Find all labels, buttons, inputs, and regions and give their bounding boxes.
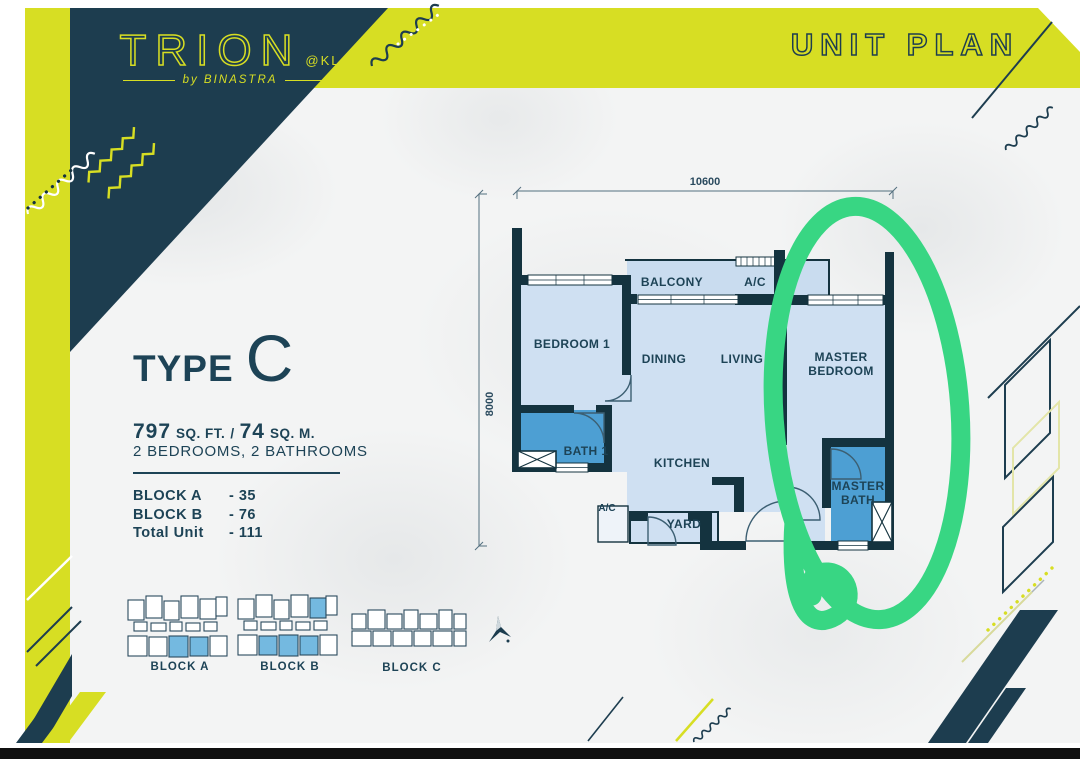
dim-top-label: 10600	[690, 176, 721, 188]
room-label-master-line2: BEDROOM	[808, 364, 873, 378]
compass-icon	[489, 616, 511, 643]
area-sqm-value: 74	[240, 420, 265, 444]
keyplan-label-block-b: BLOCK B	[260, 661, 319, 673]
unit-plan-poster: 10600 8000	[0, 0, 1080, 759]
keyplan-label-block-a: BLOCK A	[151, 661, 210, 673]
room-label-kitchen: KITCHEN	[654, 456, 710, 470]
stat-row-block-b: BLOCK B - 76	[133, 506, 263, 525]
shaft-master-bath	[872, 502, 892, 542]
room-label-yard: YARD	[667, 517, 702, 531]
brand-at-kl: @KL	[305, 53, 340, 68]
decor-bottom-center	[588, 697, 732, 744]
room-label-bath1: BATH 1	[564, 444, 609, 458]
stat-value: - 76	[229, 507, 256, 523]
area-sqft-value: 797	[133, 420, 171, 444]
room-label-bedroom1: BEDROOM 1	[534, 337, 610, 351]
room-label-master-line1: MASTER	[814, 350, 867, 364]
keyplan-block-a	[128, 596, 227, 657]
decor-right-chevrons	[962, 306, 1080, 662]
dim-left-label: 8000	[484, 392, 496, 416]
decor-bottom-left	[16, 556, 106, 759]
unit-bedbath: 2 BEDROOMS, 2 BATHROOMS	[133, 443, 368, 460]
living-dining-kitchen-floor	[627, 300, 780, 512]
room-label-balcony: BALCONY	[641, 275, 703, 289]
brand-byline: by BINASTRA	[70, 74, 390, 86]
keyplan-label-block-c: BLOCK C	[382, 662, 441, 674]
brand-title: TRION	[120, 26, 302, 76]
brand-logo: TRION @KL by BINASTRA	[70, 14, 390, 114]
keyplan-block-c	[352, 610, 466, 646]
unit-type-word: TYPE	[133, 348, 234, 390]
byline-rule-right	[285, 80, 337, 81]
area-separator: /	[230, 426, 234, 441]
stat-label: Total Unit	[133, 525, 229, 541]
window-master-bedroom	[808, 295, 883, 305]
decor-dots-left	[28, 166, 76, 208]
stat-label: BLOCK A	[133, 488, 229, 504]
room-label-ac-bottom: A/C	[598, 503, 615, 514]
dimension-top: 10600	[513, 176, 897, 199]
unit-area: 797 SQ. FT. / 74 SQ. M.	[133, 420, 315, 444]
unit-type-block: TYPE C	[133, 330, 293, 390]
ac-grille	[736, 257, 778, 266]
bottom-black-bar	[0, 748, 1080, 759]
room-label-ac-top: A/C	[744, 275, 766, 289]
room-label-living: LIVING	[721, 352, 763, 366]
dimension-left: 8000	[475, 190, 496, 550]
window-master-bath	[838, 541, 868, 550]
room-label-dining: DINING	[642, 352, 686, 366]
unit-stats: BLOCK A - 35 BLOCK B - 76 Total Unit - 1…	[133, 487, 263, 543]
stat-value: - 111	[229, 525, 263, 541]
floor-plan: 10600 8000	[475, 176, 897, 550]
room-label-master-bath-line1: MASTER	[831, 479, 884, 493]
stat-label: BLOCK B	[133, 507, 229, 523]
window-bedroom1	[528, 275, 612, 285]
stat-value: - 35	[229, 488, 256, 504]
page-title: UNIT PLAN	[780, 27, 1030, 63]
stat-row-total: Total Unit - 111	[133, 524, 263, 543]
window-bath1	[556, 463, 588, 472]
area-sqft-unit: SQ. FT.	[176, 426, 225, 441]
byline-rule-left	[123, 80, 175, 81]
byline-text: by BINASTRA	[183, 74, 278, 86]
area-sqm-unit: SQ. M.	[270, 426, 315, 441]
info-divider	[133, 472, 340, 474]
unit-type-letter: C	[246, 330, 294, 386]
room-label-master-bath-line2: BATH	[841, 493, 875, 507]
keyplan-block-b	[238, 595, 337, 656]
window-balcony	[638, 295, 738, 304]
stat-row-block-a: BLOCK A - 35	[133, 487, 263, 506]
shaft-bath1	[518, 451, 556, 468]
